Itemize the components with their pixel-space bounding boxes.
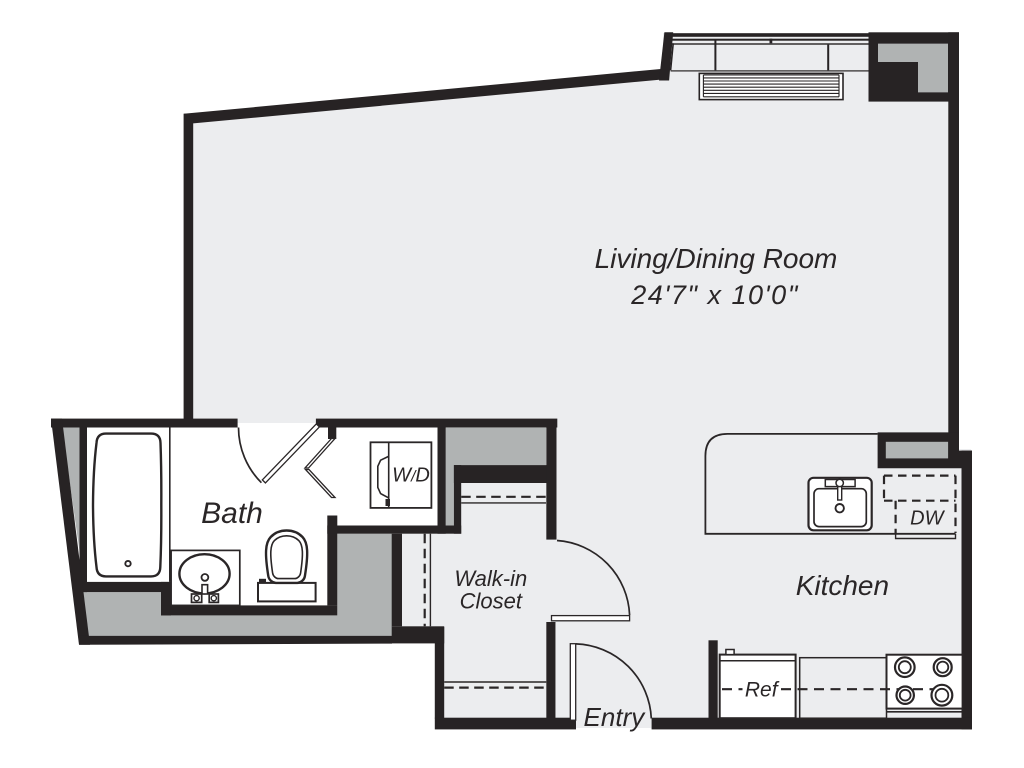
svg-text:Ref: Ref [745, 679, 780, 702]
svg-text:Living/Dining Room: Living/Dining Room [595, 243, 838, 274]
svg-text:24'7" x 10'0": 24'7" x 10'0" [630, 280, 799, 310]
svg-text:Walk-in: Walk-in [454, 566, 527, 591]
svg-text:DW: DW [910, 508, 945, 530]
svg-text:Bath: Bath [201, 497, 263, 530]
svg-text:Closet: Closet [460, 589, 523, 614]
svg-text:Entry: Entry [584, 702, 647, 732]
svg-text:Kitchen: Kitchen [796, 570, 889, 601]
svg-text:W/D: W/D [392, 465, 430, 487]
